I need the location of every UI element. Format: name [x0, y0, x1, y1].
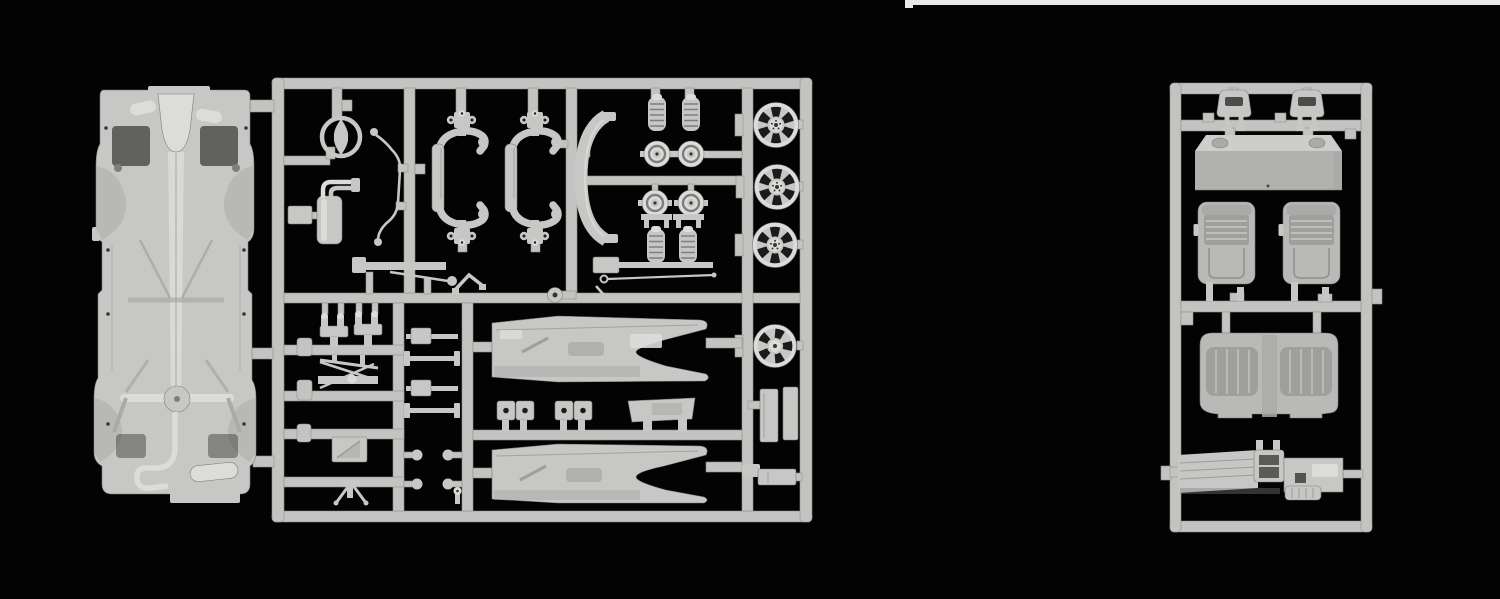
idler-pulley	[548, 288, 563, 303]
chassis-floor-pan	[92, 86, 256, 503]
bench-seat	[1200, 333, 1338, 418]
console-tray	[1285, 486, 1321, 500]
chassis-top-tab	[148, 86, 210, 92]
road-wheel-2	[755, 165, 800, 210]
road-wheel-1	[754, 103, 799, 148]
parcel-shelf	[1195, 135, 1342, 190]
coil-spring-2	[682, 94, 700, 131]
model-kit-photo	[0, 0, 1500, 599]
coil-spring-4	[679, 226, 697, 263]
chassis-bottom-tab	[170, 492, 240, 503]
heater-box	[288, 206, 312, 224]
photo-stage	[0, 0, 1500, 599]
engine-bay-recess-left	[112, 126, 150, 166]
battery-box	[332, 437, 367, 462]
coil-spring-1	[648, 94, 666, 131]
road-wheel-3	[753, 223, 798, 268]
engine-bay-recess-right	[200, 126, 238, 166]
coil-spring-3	[647, 226, 665, 263]
